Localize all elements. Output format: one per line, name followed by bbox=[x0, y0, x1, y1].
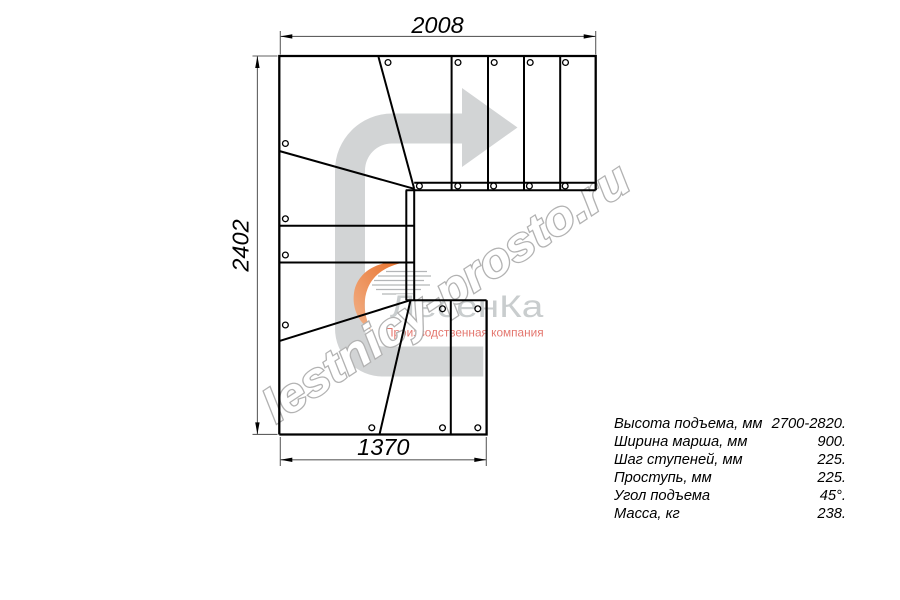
svg-text:lestnicy-prosto.ru: lestnicy-prosto.ru bbox=[253, 153, 639, 433]
